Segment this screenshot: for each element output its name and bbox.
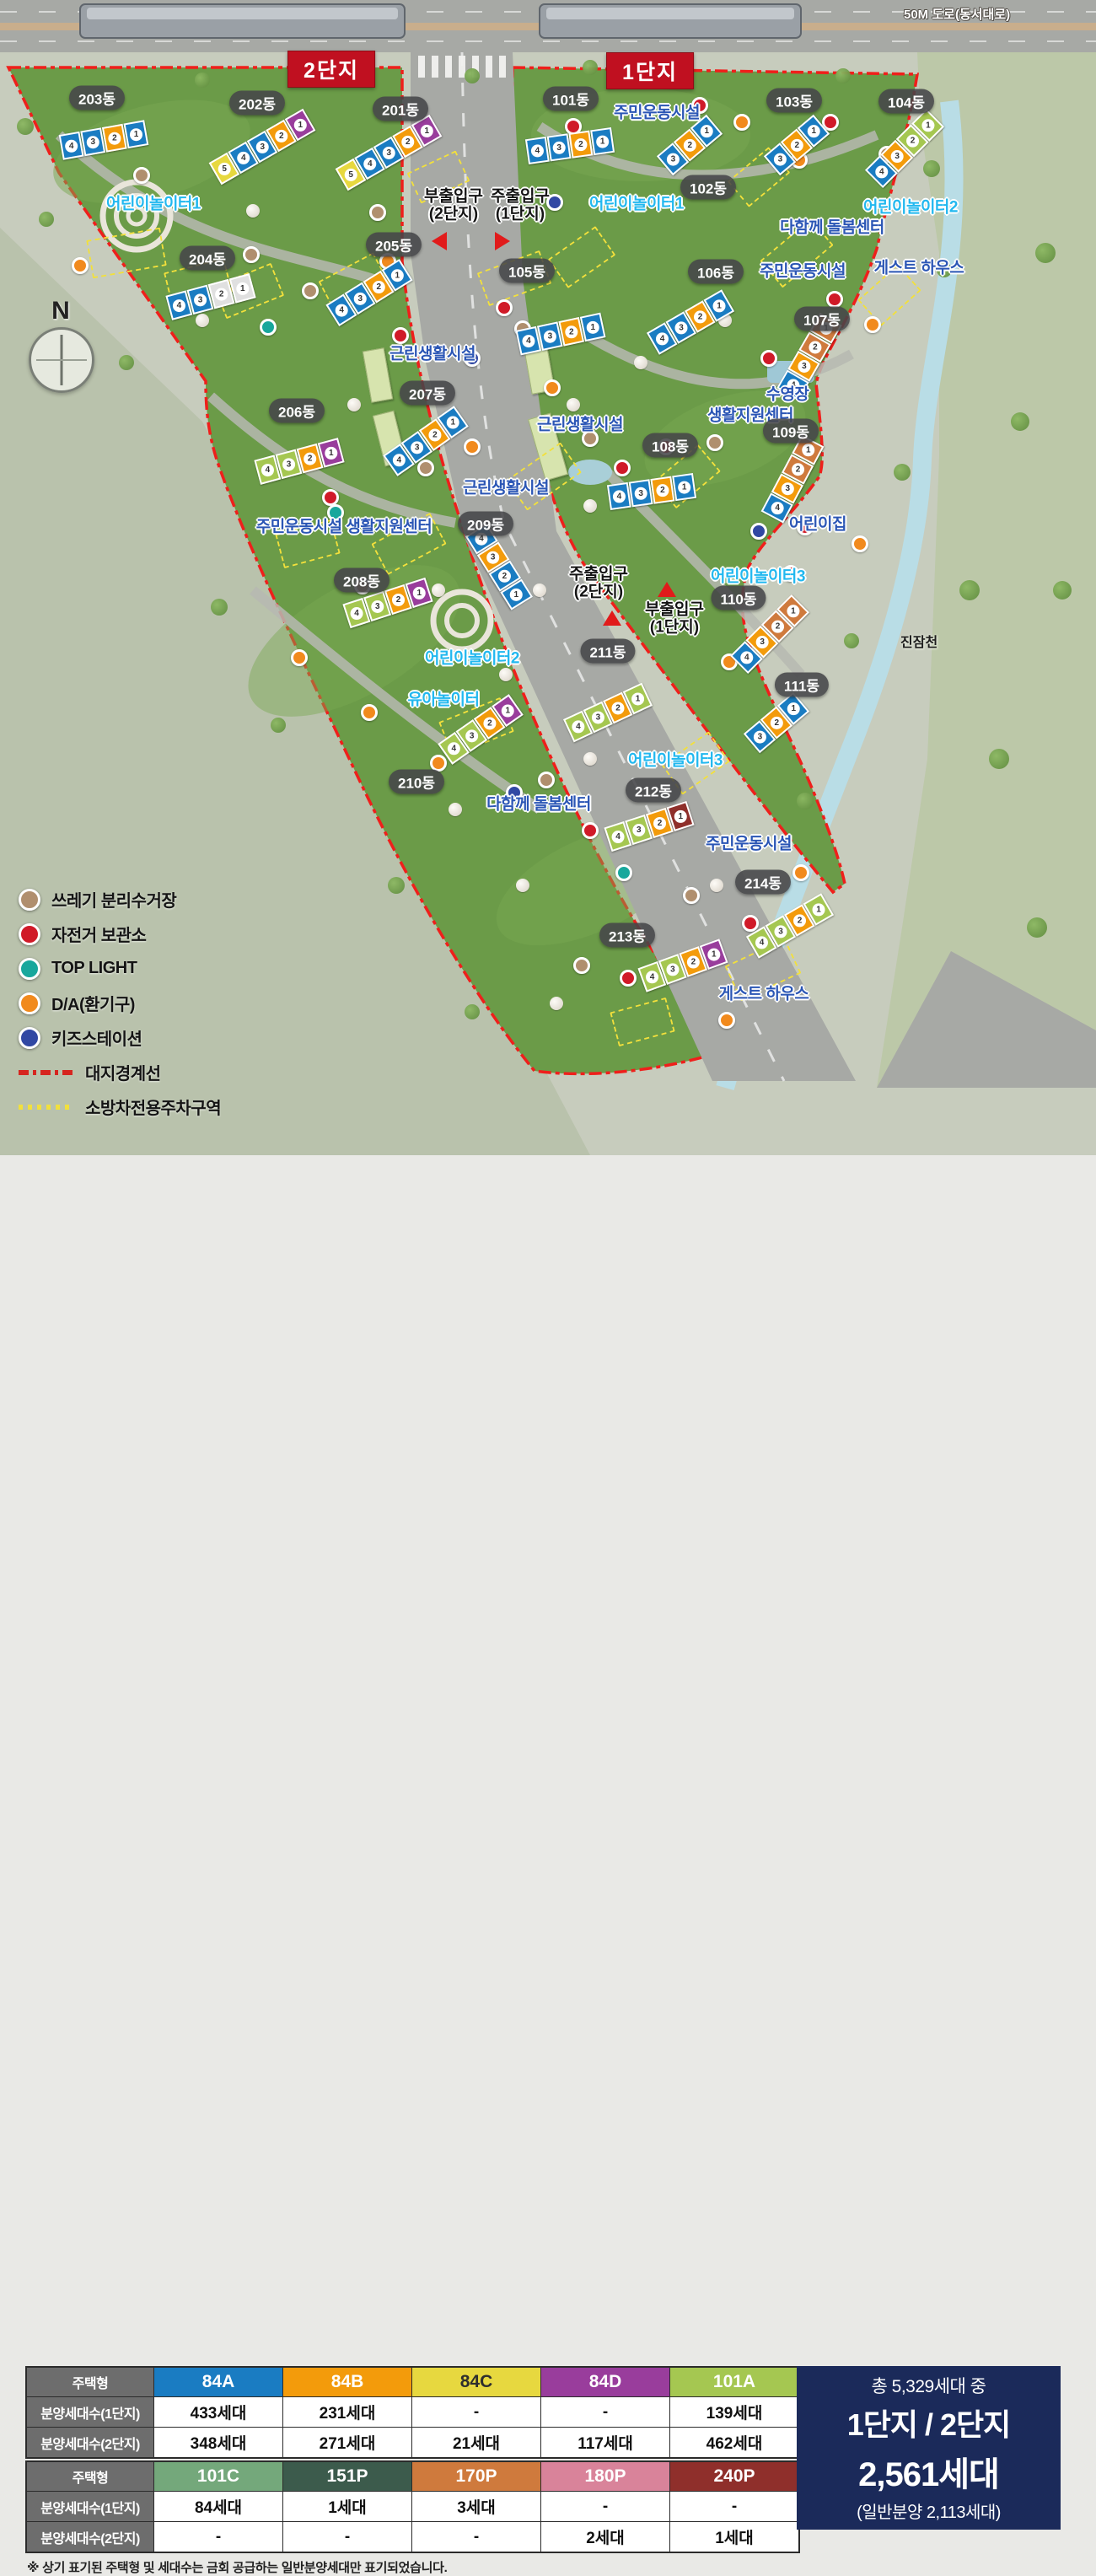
unit-type-header: 151P bbox=[283, 2461, 412, 2492]
unit-line-number: 3 bbox=[781, 482, 793, 495]
unit-type-header: 101A bbox=[670, 2367, 800, 2397]
unit-line-number: 4 bbox=[646, 971, 658, 983]
building-label: 105동 bbox=[499, 259, 555, 283]
households-value: 462세대 bbox=[670, 2428, 800, 2459]
unit-line-number: 2 bbox=[304, 452, 316, 465]
tree-icon bbox=[844, 633, 859, 648]
legend-marker-icon bbox=[19, 992, 40, 1014]
amenity-marker-orange bbox=[852, 535, 868, 552]
entrance-label: 부출입구(1단지) bbox=[645, 601, 704, 637]
amenity-marker-tan bbox=[706, 434, 723, 451]
entrance-label-line: 부출입구 bbox=[645, 601, 704, 619]
total-line: 총 5,329세대 중 bbox=[872, 2373, 986, 2398]
table-row-label: 분양세대수(2단지) bbox=[26, 2522, 154, 2553]
unit-line-number: 3 bbox=[87, 136, 99, 148]
compass-dial-icon bbox=[29, 327, 94, 393]
unit-line-number: 3 bbox=[755, 636, 768, 648]
tree-icon bbox=[894, 464, 911, 481]
entrance-arrow-icon bbox=[603, 610, 621, 626]
amenity-marker-tan bbox=[133, 167, 150, 184]
unit-line-number: 4 bbox=[572, 720, 584, 733]
building-cluster: 4321 bbox=[59, 120, 149, 159]
facility-label: 어린이놀이터1 bbox=[589, 191, 684, 214]
entrance-arrow-icon bbox=[432, 232, 447, 250]
unit-line-number: 1 bbox=[130, 128, 142, 141]
unit-line-number: 3 bbox=[592, 711, 604, 723]
facility-label: 근린생활시설 bbox=[537, 412, 623, 435]
households-value: - bbox=[412, 2397, 541, 2428]
unit-line-number: 2 bbox=[809, 341, 821, 353]
unit-line-number: 2 bbox=[611, 702, 624, 714]
unit-line-number: 1 bbox=[391, 269, 404, 282]
facility-label: 다함께 돌봄센터 bbox=[780, 215, 884, 238]
blossom-tree-icon bbox=[550, 997, 563, 1010]
unit-block: 3 bbox=[80, 127, 105, 156]
blossom-tree-icon bbox=[567, 398, 580, 411]
facility-label: 어린이집 bbox=[789, 512, 846, 535]
building-label: 106동 bbox=[688, 260, 744, 284]
unit-type-header: 84B bbox=[283, 2367, 412, 2397]
unit-line-number: 4 bbox=[522, 335, 535, 347]
unit-line-number: 3 bbox=[256, 141, 269, 153]
unit-block: 2 bbox=[568, 131, 593, 159]
unit-line-number: 3 bbox=[754, 730, 766, 743]
building-label: 211동 bbox=[580, 639, 635, 664]
entrance-label-line: (1단지) bbox=[491, 206, 550, 223]
unit-line-number: 2 bbox=[687, 955, 700, 968]
amenity-marker-tan bbox=[538, 772, 555, 788]
households-value: - bbox=[283, 2522, 412, 2553]
amenity-marker-red bbox=[614, 460, 631, 476]
table-header-label: 주택형 bbox=[26, 2461, 154, 2492]
unit-line-number: 3 bbox=[635, 487, 647, 499]
unit-line-number: 3 bbox=[544, 330, 556, 342]
unit-line-number: 3 bbox=[890, 150, 903, 163]
amenity-marker-orange bbox=[733, 114, 750, 131]
unit-line-number: 4 bbox=[448, 742, 460, 755]
unit-line-number: 1 bbox=[787, 702, 799, 715]
unit-line-number: 4 bbox=[65, 139, 78, 152]
legend-label: 키즈스테이션 bbox=[51, 1025, 142, 1050]
households-line: 2,561세대 bbox=[858, 2447, 999, 2496]
unit-line-number: 4 bbox=[393, 454, 406, 466]
facility-label: 어린이놀이터2 bbox=[425, 646, 519, 669]
unit-line-number: 4 bbox=[656, 332, 669, 345]
blossom-tree-icon bbox=[583, 752, 597, 766]
building-label: 208동 bbox=[334, 568, 390, 593]
blossom-tree-icon bbox=[710, 879, 723, 892]
amenity-marker-orange bbox=[291, 649, 308, 666]
district-line: 1단지 / 2단지 bbox=[847, 2401, 1011, 2444]
legend-label: 소방차전용주차구역 bbox=[85, 1094, 221, 1119]
households-value: 1세대 bbox=[670, 2522, 800, 2553]
households-value: 84세대 bbox=[154, 2492, 283, 2522]
amenity-marker-tan bbox=[417, 460, 434, 476]
unit-line-number: 4 bbox=[875, 165, 888, 178]
unit-line-number: 1 bbox=[712, 299, 725, 312]
building-label: 209동 bbox=[458, 512, 513, 536]
facility-label: 게스트 하우스 bbox=[719, 981, 809, 1004]
unit-line-number: 1 bbox=[413, 586, 426, 599]
blossom-tree-icon bbox=[347, 398, 361, 411]
building-cluster: 321 bbox=[657, 115, 723, 175]
unit-line-number: 2 bbox=[653, 816, 666, 829]
building-label: 204동 bbox=[180, 246, 235, 271]
facility-label: 게스트 하우스 bbox=[874, 255, 964, 278]
unit-block: 1 bbox=[123, 120, 148, 148]
entrance-label-line: 주출입구 bbox=[491, 188, 550, 206]
unit-type-table-2: 주택형101C151P170P180P240P분양세대수(1단지)84세대1세대… bbox=[25, 2460, 800, 2553]
households-value: 231세대 bbox=[283, 2397, 412, 2428]
building-label: 213동 bbox=[599, 923, 655, 948]
unit-line-number: 2 bbox=[108, 132, 121, 144]
unit-line-number: 2 bbox=[574, 138, 587, 151]
table-row-label: 분양세대수(1단지) bbox=[26, 2492, 154, 2522]
tree-icon bbox=[17, 118, 34, 135]
entrance-label-line: 주출입구 bbox=[569, 566, 628, 583]
river-label: 진잠천 bbox=[900, 631, 938, 651]
building-cluster: 4321 bbox=[637, 938, 728, 992]
unit-line-number: 1 bbox=[596, 135, 609, 148]
households-value: 1세대 bbox=[283, 2492, 412, 2522]
entrance-label-line: 부출입구 bbox=[424, 188, 483, 206]
unit-line-number: 1 bbox=[674, 809, 687, 822]
unit-block: 2 bbox=[102, 124, 127, 153]
amenity-marker-tan bbox=[369, 204, 386, 221]
amenity-marker-red bbox=[496, 299, 513, 316]
amenity-marker-tan bbox=[243, 246, 260, 263]
legend-item: 키즈스테이션 bbox=[19, 1020, 221, 1055]
unit-block: 1 bbox=[590, 127, 615, 155]
tree-icon bbox=[388, 877, 405, 894]
households-value: 348세대 bbox=[154, 2428, 283, 2459]
facility-label: 어린이놀이터3 bbox=[628, 748, 723, 771]
tree-icon bbox=[923, 160, 940, 177]
building-label: 207동 bbox=[400, 381, 455, 406]
legend-label: TOP LIGHT bbox=[51, 959, 137, 978]
tree-icon bbox=[583, 60, 598, 75]
unit-type-header: 101C bbox=[154, 2461, 283, 2492]
unit-line-number: 2 bbox=[565, 325, 578, 338]
building-cluster: 4321 bbox=[607, 473, 696, 510]
amenity-marker-tan bbox=[302, 282, 319, 299]
unit-block: 1 bbox=[672, 473, 696, 501]
households-value: 139세대 bbox=[670, 2397, 800, 2428]
building-cluster: 4321 bbox=[525, 127, 615, 164]
unit-line-number: 2 bbox=[428, 428, 441, 441]
unit-block: 4 bbox=[525, 137, 550, 164]
legend-line-sample-icon bbox=[19, 1069, 74, 1076]
site-plan-map: 4321203동54321202동54321201동4321204동432120… bbox=[0, 0, 1096, 1155]
unit-line-number: 2 bbox=[771, 620, 784, 632]
households-value: - bbox=[154, 2522, 283, 2553]
households-value: - bbox=[412, 2522, 541, 2553]
households-value: - bbox=[541, 2397, 670, 2428]
amenity-marker-red bbox=[620, 970, 637, 987]
unit-line-number: 3 bbox=[194, 293, 207, 306]
unit-line-number: 1 bbox=[921, 119, 934, 132]
building-label: 103동 bbox=[766, 89, 822, 113]
building-cluster: 4321 bbox=[516, 313, 606, 356]
unit-line-number: 4 bbox=[613, 490, 626, 503]
tree-icon bbox=[797, 793, 814, 809]
facility-label: 어린이놀이터2 bbox=[863, 195, 958, 218]
building-label: 104동 bbox=[878, 89, 934, 114]
unit-line-number: 3 bbox=[798, 360, 810, 373]
building-cluster: 321 bbox=[744, 692, 809, 753]
unit-line-number: 4 bbox=[531, 144, 544, 157]
unit-line-number: 5 bbox=[218, 163, 230, 175]
tree-icon bbox=[1011, 412, 1029, 431]
unit-line-number: 1 bbox=[707, 948, 720, 960]
unit-line-number: 2 bbox=[793, 914, 806, 927]
building-label: 111동 bbox=[775, 673, 829, 697]
unit-type-header: 84D bbox=[541, 2367, 670, 2397]
building-cluster: 54321 bbox=[209, 109, 316, 185]
unit-line-number: 1 bbox=[787, 605, 799, 617]
legend-marker-icon bbox=[19, 923, 40, 945]
unit-type-header: 240P bbox=[670, 2461, 800, 2492]
legend-line-item: 소방차전용주차구역 bbox=[19, 1089, 221, 1124]
unit-block: 4 bbox=[607, 482, 631, 510]
unit-type-header: 84C bbox=[412, 2367, 541, 2397]
tree-icon bbox=[465, 68, 480, 83]
unit-line-number: 3 bbox=[774, 153, 787, 165]
unit-line-number: 1 bbox=[802, 444, 814, 456]
building-label: 102동 bbox=[680, 175, 736, 200]
households-value: - bbox=[541, 2492, 670, 2522]
entrance-label: 부출입구(2단지) bbox=[424, 188, 483, 224]
unit-line-number: 3 bbox=[674, 321, 687, 334]
building-cluster: 4321 bbox=[254, 438, 344, 485]
amenity-marker-red bbox=[322, 489, 339, 506]
unit-line-number: 3 bbox=[353, 292, 366, 304]
amenity-marker-orange bbox=[718, 1012, 735, 1029]
tree-icon bbox=[465, 1004, 480, 1019]
district-badge: 1단지 bbox=[606, 52, 694, 89]
unit-line-number: 3 bbox=[774, 925, 787, 938]
amenity-marker-orange bbox=[792, 864, 809, 881]
table-row-label: 분양세대수(1단지) bbox=[26, 2397, 154, 2428]
legend-item: 쓰레기 분리수거장 bbox=[19, 882, 221, 917]
building-label: 101동 bbox=[543, 87, 599, 111]
unit-line-number: 2 bbox=[483, 717, 496, 729]
unit-line-number: 1 bbox=[807, 125, 819, 137]
legend-marker-icon bbox=[19, 958, 40, 980]
unit-line-number: 4 bbox=[611, 831, 624, 843]
building-label: 206동 bbox=[269, 399, 325, 423]
fire-lane-zone bbox=[548, 226, 616, 288]
amenity-marker-blue bbox=[750, 523, 767, 540]
unit-line-number: 3 bbox=[282, 458, 295, 471]
legend-marker-icon bbox=[19, 1027, 40, 1049]
compass-north-label: N bbox=[29, 297, 93, 325]
unit-line-number: 2 bbox=[684, 139, 696, 152]
amenity-marker-orange bbox=[864, 316, 881, 333]
unit-line-number: 3 bbox=[553, 141, 566, 153]
unit-type-header: 84A bbox=[154, 2367, 283, 2397]
amenity-marker-red bbox=[826, 291, 843, 308]
households-value: 3세대 bbox=[412, 2492, 541, 2522]
building-label: 108동 bbox=[642, 433, 698, 458]
facility-label: 어린이놀이터1 bbox=[106, 191, 201, 214]
unit-line-number: 4 bbox=[363, 158, 376, 170]
unit-line-number: 4 bbox=[237, 152, 250, 164]
building-cluster: 4321 bbox=[761, 434, 825, 523]
amenity-marker-teal bbox=[615, 864, 632, 881]
unit-line-number: 2 bbox=[694, 310, 706, 323]
building-label: 107동 bbox=[794, 307, 850, 331]
unit-line-number: 2 bbox=[656, 484, 669, 497]
entrance-label: 주출입구(2단지) bbox=[569, 566, 628, 602]
amenity-marker-tan bbox=[573, 957, 590, 974]
building-label: 201동 bbox=[373, 97, 428, 121]
amenity-marker-red bbox=[582, 822, 599, 839]
unit-line-number: 4 bbox=[771, 502, 783, 514]
unit-line-number: 3 bbox=[667, 153, 680, 165]
table-row-label: 분양세대수(2단지) bbox=[26, 2428, 154, 2459]
amenity-marker-orange bbox=[361, 704, 378, 721]
facility-label: 주민운동시설 bbox=[760, 259, 846, 282]
households-value: 2세대 bbox=[541, 2522, 670, 2553]
district-badge: 2단지 bbox=[287, 51, 375, 88]
entrance-label-line: (2단지) bbox=[569, 583, 628, 601]
unit-block: 2 bbox=[650, 476, 674, 504]
facility-label: 다함께 돌봄센터 bbox=[486, 792, 591, 815]
unit-line-number: 3 bbox=[465, 729, 478, 742]
unit-line-number: 1 bbox=[325, 446, 337, 459]
facility-label: 근린생활시설 bbox=[463, 476, 549, 498]
blossom-tree-icon bbox=[196, 314, 209, 327]
households-value: 271세대 bbox=[283, 2428, 412, 2459]
unit-line-number: 5 bbox=[344, 169, 357, 181]
households-value: 21세대 bbox=[412, 2428, 541, 2459]
blossom-tree-icon bbox=[533, 583, 546, 597]
entrance-label-line: (2단지) bbox=[424, 206, 483, 223]
facility-label: 어린이놀이터3 bbox=[711, 564, 805, 587]
tree-icon bbox=[119, 355, 134, 370]
tree-icon bbox=[989, 749, 1009, 769]
building-label: 212동 bbox=[626, 778, 681, 803]
legend-label: 자전거 보관소 bbox=[51, 922, 146, 946]
households-value: 117세대 bbox=[541, 2428, 670, 2459]
retail-building bbox=[363, 347, 393, 403]
unit-line-number: 4 bbox=[350, 607, 363, 620]
road-label: 50M 도로(동서대로) bbox=[904, 5, 1010, 23]
building-label: 202동 bbox=[229, 91, 285, 116]
entrance-label-line: (1단지) bbox=[645, 619, 704, 637]
tree-icon bbox=[211, 599, 228, 616]
building-label: 110동 bbox=[711, 586, 766, 610]
unit-line-number: 1 bbox=[587, 320, 599, 333]
unit-line-number: 2 bbox=[215, 288, 228, 300]
unit-line-number: 4 bbox=[335, 304, 347, 316]
blossom-tree-icon bbox=[516, 879, 529, 892]
unit-line-number: 1 bbox=[510, 589, 523, 601]
amenity-marker-red bbox=[742, 915, 759, 932]
legend-label: D/A(환기구) bbox=[51, 991, 135, 1015]
building-label: 203동 bbox=[69, 86, 125, 110]
tree-icon bbox=[959, 580, 980, 600]
tree-icon bbox=[195, 73, 210, 88]
amenity-marker-tan bbox=[683, 887, 700, 904]
blossom-tree-icon bbox=[449, 803, 462, 816]
blossom-tree-icon bbox=[246, 204, 260, 218]
entrance-arrow-icon bbox=[495, 232, 510, 250]
unit-line-number: 1 bbox=[446, 416, 459, 428]
blossom-tree-icon bbox=[432, 583, 445, 597]
building-label: 109동 bbox=[763, 419, 819, 444]
unit-line-number: 1 bbox=[294, 119, 307, 132]
building-label: 214동 bbox=[735, 870, 791, 895]
unit-line-number: 3 bbox=[383, 147, 395, 159]
unit-line-number: 2 bbox=[392, 593, 405, 605]
unit-line-number: 4 bbox=[261, 464, 274, 476]
compass: N bbox=[29, 297, 93, 393]
unit-line-number: 4 bbox=[173, 299, 185, 312]
building-label: 210동 bbox=[389, 770, 444, 794]
building-cluster: 4321 bbox=[465, 523, 533, 610]
unit-line-number: 2 bbox=[373, 281, 385, 293]
tree-icon bbox=[1053, 581, 1072, 600]
building-label: 205동 bbox=[366, 233, 422, 257]
map-legend: 쓰레기 분리수거장자전거 보관소TOP LIGHTD/A(환기구)키즈스테이션대… bbox=[19, 882, 221, 1124]
unit-line-number: 1 bbox=[700, 125, 712, 137]
amenity-marker-orange bbox=[464, 438, 481, 455]
unit-line-number: 3 bbox=[632, 824, 645, 836]
amenity-marker-orange bbox=[544, 379, 561, 396]
entrance-label: 주출입구(1단지) bbox=[491, 188, 550, 224]
unit-line-number: 3 bbox=[487, 551, 500, 563]
legend-item: TOP LIGHT bbox=[19, 951, 221, 986]
unit-line-number: 1 bbox=[236, 282, 249, 294]
total-households-box: 총 5,329세대 중 1단지 / 2단지 2,561세대 (일반분양 2,11… bbox=[797, 2366, 1061, 2530]
legend-line-item: 대지경계선 bbox=[19, 1055, 221, 1089]
unit-block: 3 bbox=[629, 479, 653, 507]
unit-line-number: 2 bbox=[791, 139, 803, 152]
unit-type-header: 180P bbox=[541, 2461, 670, 2492]
amenity-marker-orange bbox=[72, 257, 89, 274]
legend-marker-icon bbox=[19, 889, 40, 911]
unit-line-number: 1 bbox=[421, 125, 433, 137]
tree-icon bbox=[1027, 917, 1047, 938]
unit-line-number: 2 bbox=[906, 134, 919, 147]
unit-line-number: 2 bbox=[401, 136, 414, 148]
facility-label: 주민운동시설 생활지원센터 bbox=[256, 514, 432, 537]
legend-item: D/A(환기구) bbox=[19, 986, 221, 1020]
building-cluster: 4321 bbox=[563, 683, 653, 743]
unit-line-number: 4 bbox=[740, 651, 753, 664]
unit-line-number: 1 bbox=[812, 903, 825, 916]
unit-line-number: 2 bbox=[498, 570, 511, 583]
general-sale-line: (일반분양 2,113세대) bbox=[857, 2498, 1001, 2523]
unit-block: 3 bbox=[547, 133, 572, 161]
facility-label: 근린생활시설 bbox=[390, 341, 475, 364]
unit-line-number: 4 bbox=[755, 936, 768, 949]
tree-icon bbox=[835, 68, 851, 83]
unit-line-number: 2 bbox=[275, 130, 287, 143]
fire-lane-zone bbox=[86, 228, 167, 279]
table-header-label: 주택형 bbox=[26, 2367, 154, 2397]
legend-label: 대지경계선 bbox=[85, 1060, 161, 1084]
blossom-tree-icon bbox=[583, 499, 597, 513]
facility-label: 주민운동시설 bbox=[706, 831, 792, 854]
unit-line-number: 1 bbox=[678, 481, 690, 493]
unit-block: 4 bbox=[59, 132, 84, 160]
info-panel: 주택형84A84B84C84D101A분양세대수(1단지)433세대231세대-… bbox=[0, 1155, 1096, 1438]
legend-item: 자전거 보관소 bbox=[19, 917, 221, 951]
unit-line-number: 3 bbox=[411, 441, 423, 454]
